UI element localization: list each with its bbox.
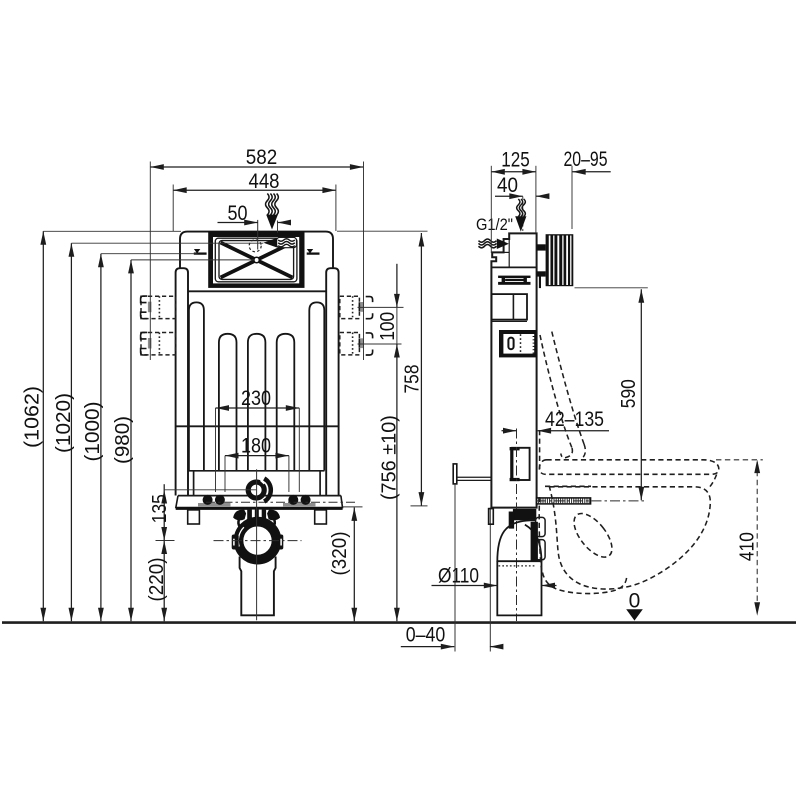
- svg-text:40: 40: [497, 174, 518, 197]
- svg-text:0: 0: [629, 590, 641, 613]
- svg-text:410: 410: [736, 532, 759, 561]
- svg-text:230: 230: [241, 387, 271, 410]
- svg-text:448: 448: [249, 170, 280, 193]
- svg-text:(1000): (1000): [81, 402, 104, 462]
- svg-text:(756 ±10): (756 ±10): [378, 415, 401, 500]
- svg-text:50: 50: [228, 202, 248, 225]
- svg-text:(1020): (1020): [52, 393, 75, 453]
- svg-text:(1062): (1062): [21, 386, 44, 448]
- svg-text:590: 590: [617, 379, 640, 408]
- svg-text:(320): (320): [328, 532, 351, 576]
- svg-text:(980): (980): [111, 416, 134, 464]
- svg-text:582: 582: [246, 146, 278, 169]
- svg-text:758: 758: [401, 365, 424, 394]
- svg-text:0–40: 0–40: [406, 624, 446, 647]
- svg-text:(220): (220): [145, 558, 168, 602]
- svg-text:180: 180: [241, 435, 271, 458]
- svg-text:100: 100: [376, 312, 399, 341]
- svg-text:135: 135: [148, 494, 171, 523]
- svg-text:20–95: 20–95: [564, 148, 608, 171]
- svg-text:Ø110: Ø110: [438, 565, 479, 588]
- svg-text:G1/2": G1/2": [476, 216, 513, 234]
- svg-text:125: 125: [501, 149, 530, 172]
- svg-text:42–135: 42–135: [545, 408, 604, 431]
